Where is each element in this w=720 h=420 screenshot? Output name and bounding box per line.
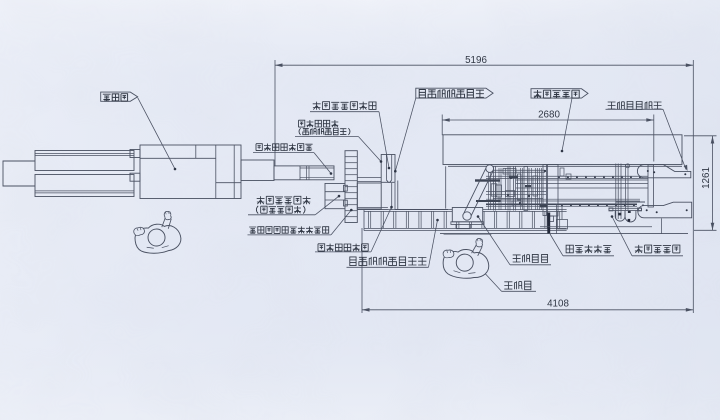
svg-text:2680: 2680 bbox=[538, 109, 560, 120]
svg-text:4108: 4108 bbox=[547, 299, 569, 310]
svg-text:5196: 5196 bbox=[465, 55, 487, 66]
svg-text:1261: 1261 bbox=[701, 167, 712, 189]
